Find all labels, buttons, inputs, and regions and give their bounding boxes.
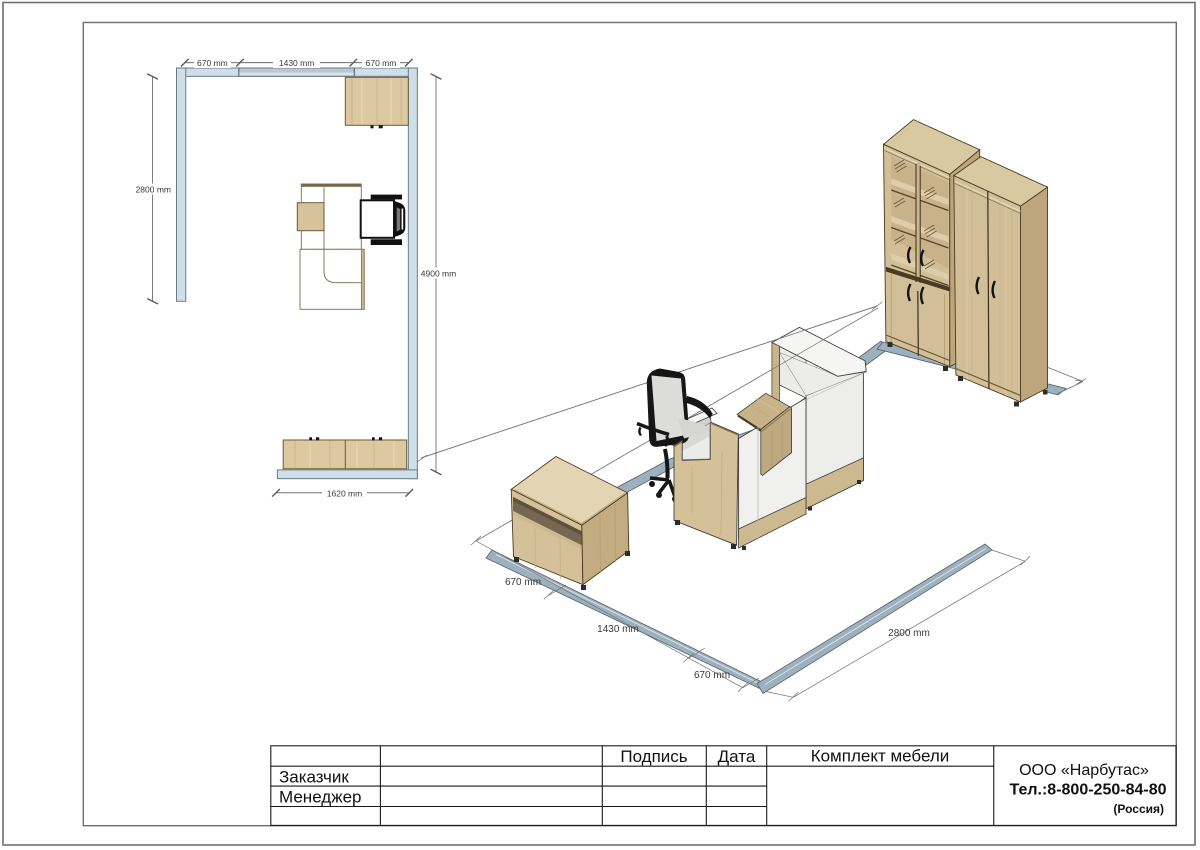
svg-text:670 mm: 670 mm [366,58,397,68]
svg-text:670 mm: 670 mm [694,670,730,681]
svg-text:Подпись: Подпись [620,747,687,766]
svg-text:670 mm: 670 mm [505,577,541,588]
svg-text:1430 mm: 1430 mm [597,624,639,635]
svg-text:2800 mm: 2800 mm [136,185,171,195]
svg-text:1620 mm: 1620 mm [327,488,362,498]
svg-text:Менеджер: Менеджер [279,788,361,807]
svg-text:Тел.:8-800-250-84-80: Тел.:8-800-250-84-80 [1009,782,1166,799]
svg-text:Комплект мебели: Комплект мебели [811,747,950,766]
svg-text:(Россия): (Россия) [1113,802,1164,816]
svg-text:670 mm: 670 mm [197,58,228,68]
svg-text:2800 mm: 2800 mm [888,628,930,639]
svg-text:Заказчик: Заказчик [279,768,349,787]
svg-text:Дата: Дата [718,747,756,766]
svg-text:ООО «Нарбутас»: ООО «Нарбутас» [1019,762,1149,779]
svg-text:4900 mm: 4900 mm [421,269,456,279]
svg-text:1430 mm: 1430 mm [279,58,314,68]
